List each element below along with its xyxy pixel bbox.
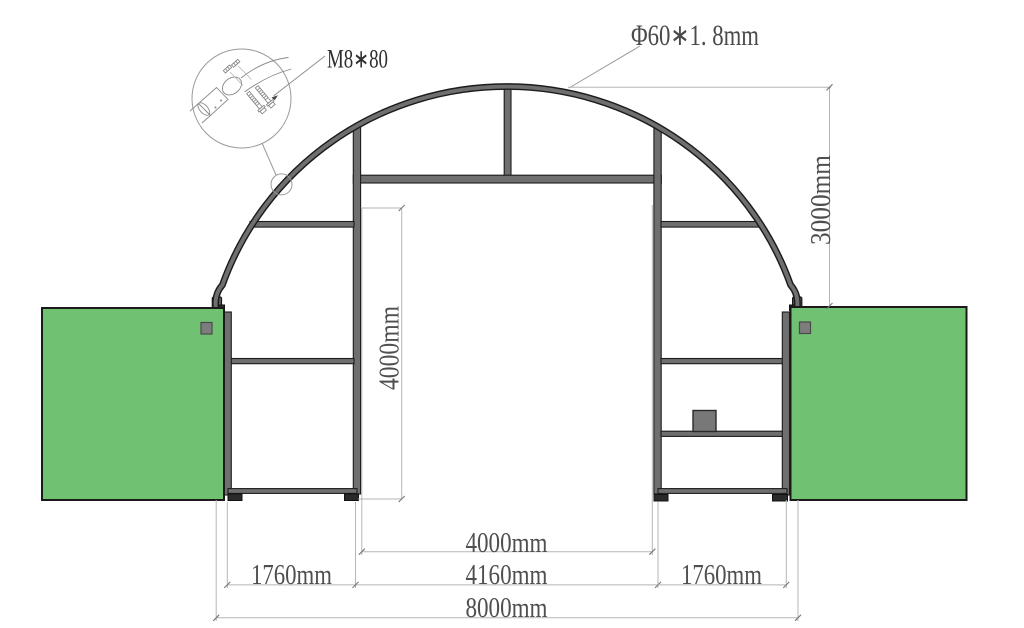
svg-text:4160mm: 4160mm: [466, 559, 548, 591]
svg-text:4000mm: 4000mm: [374, 306, 406, 390]
svg-text:M8∗80: M8∗80: [327, 45, 388, 74]
svg-text:3000mm: 3000mm: [805, 155, 837, 245]
svg-text:Φ60∗1. 8mm: Φ60∗1. 8mm: [631, 19, 759, 52]
svg-text:1760mm: 1760mm: [681, 559, 762, 591]
svg-text:4000mm: 4000mm: [466, 527, 548, 559]
svg-text:8000mm: 8000mm: [466, 592, 548, 624]
svg-text:1760mm: 1760mm: [251, 559, 332, 591]
